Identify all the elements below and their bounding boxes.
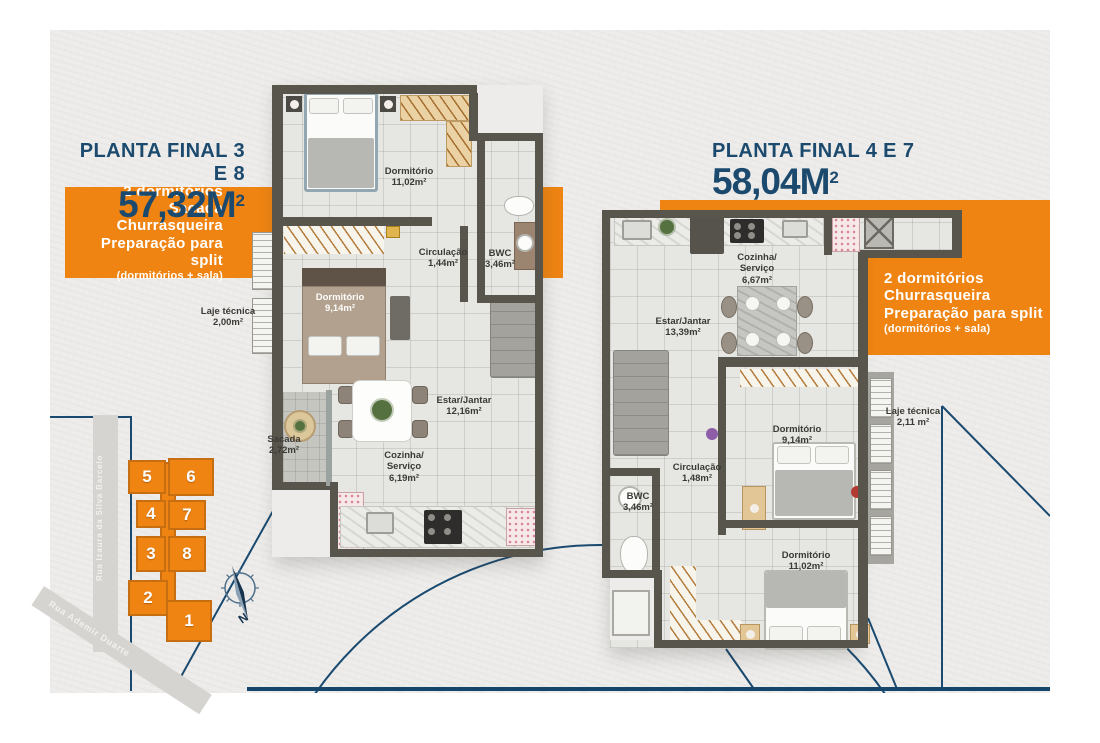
plan-title: PLANTA FINAL 4 E 7	[712, 140, 972, 163]
room-label: Dormitório11,02m²	[361, 166, 457, 188]
plan-area: 57,32M2	[63, 186, 245, 224]
room-label: Circulação1,48m²	[649, 462, 745, 484]
toilet	[504, 196, 534, 216]
room-label: Sacada2,72m²	[236, 434, 332, 456]
wall	[718, 357, 866, 367]
plate	[776, 332, 791, 347]
ac-condenser	[870, 424, 892, 464]
stove	[424, 510, 462, 544]
pillow	[777, 446, 811, 464]
barbecue-grill	[832, 216, 860, 252]
kitchen-cabinet	[690, 216, 724, 254]
stove	[730, 219, 764, 243]
feature-item: Preparação para split	[65, 235, 223, 270]
unit-8: 8	[168, 536, 206, 572]
exterior-patch	[477, 85, 543, 133]
wall	[654, 640, 868, 648]
laundry-area	[506, 508, 536, 546]
wall	[602, 210, 962, 218]
bench	[386, 226, 400, 238]
room-label: Dormitório9,14m²	[749, 424, 845, 446]
room-label: Laje técnica2,11 m²	[875, 406, 951, 428]
wall	[602, 210, 610, 578]
unit-3: 3	[136, 536, 166, 572]
sofa	[490, 300, 538, 378]
pillow	[343, 98, 373, 114]
tv-rack	[740, 369, 858, 387]
wall	[272, 482, 330, 490]
closet	[400, 95, 472, 121]
wall	[330, 549, 543, 557]
dining-chair	[797, 296, 813, 318]
compass-icon: N	[220, 560, 264, 626]
feature-item: 2 dormitórios	[884, 270, 1043, 287]
blanket	[775, 470, 853, 516]
room-label: Estar/Jantar12,16m²	[416, 395, 512, 417]
kitchen-sink	[622, 220, 652, 240]
brochure-page: Rua Izaura da Silva Barcelo Rua Ademir D…	[0, 0, 1100, 743]
wall	[330, 482, 338, 557]
exterior-patch	[272, 490, 330, 557]
sofa	[613, 350, 669, 456]
feature-note: (dormitórios + sala)	[65, 270, 223, 282]
room-label: Dormitório11,02m²	[758, 550, 854, 572]
plate	[776, 296, 791, 311]
pillow	[309, 98, 339, 114]
plant	[295, 421, 305, 431]
wall	[860, 250, 962, 258]
shaft-box	[864, 213, 894, 249]
nightstand	[286, 96, 302, 112]
street-vertical-label: Rua Izaura da Silva Barcelo	[95, 430, 116, 605]
plant	[372, 400, 392, 420]
unit-7: 7	[168, 500, 206, 530]
unit-5: 5	[128, 460, 166, 494]
bed-headboard	[302, 268, 386, 286]
ac-condenser	[870, 470, 892, 510]
wall	[272, 85, 477, 94]
room-label: Dormitório9,14m²	[292, 292, 388, 314]
pillow	[308, 336, 342, 356]
unit-2: 2	[128, 580, 168, 616]
kitchen-sink	[782, 220, 808, 238]
blanket	[766, 572, 846, 608]
room-label: Estar/Jantar13,39m²	[635, 316, 731, 338]
plate	[745, 296, 760, 311]
wall	[654, 578, 662, 648]
room-label: BWC3,46m²	[590, 491, 686, 513]
feature-item: Preparação para split	[884, 305, 1043, 322]
left-title-block: PLANTA FINAL 3 E 8 57,32M2	[63, 140, 245, 224]
pillow	[346, 336, 380, 356]
toilet	[620, 536, 648, 574]
wall	[535, 133, 543, 557]
wall	[477, 133, 543, 141]
wall	[718, 357, 726, 535]
room-label: Cozinha/ Serviço6,67m²	[709, 252, 805, 286]
feature-item: Churrasqueira	[884, 287, 1043, 304]
room-label: Cozinha/ Serviço6,19m²	[356, 450, 452, 484]
room-label: BWC3,46m²	[452, 248, 548, 270]
wall	[718, 520, 868, 528]
feature-note: (dormitórios + sala)	[884, 323, 1043, 335]
site-boundary-lines	[50, 30, 1050, 693]
unit-4: 4	[136, 500, 166, 528]
wall	[477, 141, 485, 303]
purple-plant	[706, 428, 718, 440]
compass-north-label: N	[236, 610, 251, 626]
wall	[477, 295, 543, 303]
plate	[745, 332, 760, 347]
plan-area: 58,04M2	[712, 163, 972, 201]
room-label: Laje técnica2,00m²	[190, 306, 266, 328]
unit-6: 6	[168, 458, 214, 496]
wall	[858, 252, 868, 648]
dining-chair	[797, 332, 813, 354]
dining-chair	[412, 420, 428, 438]
wall	[272, 85, 283, 490]
kitchen-sink	[366, 512, 394, 534]
right-title-block: PLANTA FINAL 4 E 7 58,04M2	[712, 140, 972, 201]
ac-condenser	[870, 516, 892, 556]
nightstand	[380, 96, 396, 112]
pillow	[815, 446, 849, 464]
dresser	[390, 296, 410, 340]
dining-chair	[721, 296, 737, 318]
plant	[660, 220, 674, 234]
wall	[275, 217, 432, 226]
wall	[824, 215, 832, 255]
wall	[602, 570, 662, 578]
right-feature-list: 2 dormitórios Churrasqueira Preparação p…	[884, 270, 1043, 335]
plan-title: PLANTA FINAL 3 E 8	[63, 140, 245, 186]
unit-1: 1	[166, 600, 212, 642]
shower	[612, 590, 650, 636]
wardrobe	[284, 224, 384, 254]
